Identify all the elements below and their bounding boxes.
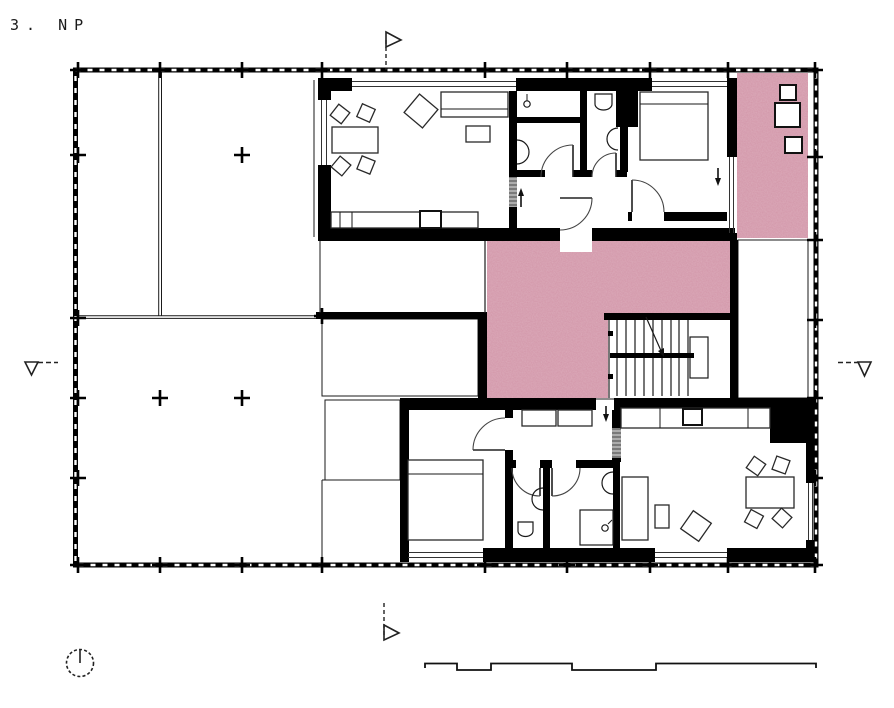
facade-profile-line (425, 664, 816, 671)
bed (408, 460, 483, 540)
chair (746, 456, 765, 475)
washbasin (517, 140, 529, 164)
closet (558, 410, 592, 426)
section-marker-right (838, 362, 871, 376)
north-indicator (67, 650, 94, 677)
bath-door-arc (541, 145, 573, 177)
washbasin (532, 488, 543, 510)
drawing-sheet: 3. NP (0, 0, 894, 708)
terrace-stool (780, 85, 796, 100)
bedroom-door-arc (632, 180, 664, 212)
dining-table (746, 477, 794, 508)
chair (331, 156, 351, 176)
bedroom-door-arc (473, 418, 505, 450)
wc-door-arc (592, 153, 616, 177)
armchair (404, 94, 438, 128)
unit-b-doors (473, 418, 580, 496)
unit-a-furniture (330, 92, 708, 228)
section-flag-icon (384, 625, 399, 640)
chair (357, 104, 375, 122)
chair (330, 104, 350, 124)
unit-b-furniture (408, 408, 794, 541)
section-marker-top (386, 32, 401, 70)
unit-b-fixtures (518, 472, 613, 545)
stair-treads-upper (617, 320, 688, 353)
bath2-door-arc (552, 468, 580, 496)
section-triangle-icon (25, 362, 38, 375)
duct-shaft (616, 91, 638, 127)
side-table (655, 505, 669, 528)
cabinet (466, 126, 490, 142)
bath1-door-arc (512, 468, 540, 496)
staircase (604, 313, 738, 398)
shower-head (602, 525, 608, 531)
toilet (518, 522, 533, 537)
void-left-upper (322, 319, 478, 396)
chair (357, 156, 375, 174)
kitchen-sink (683, 409, 702, 425)
stair-direction-line (646, 317, 662, 353)
cabinet-box (420, 211, 441, 228)
closet (522, 410, 556, 426)
stair-treads-lower (617, 358, 688, 396)
shower-head (524, 101, 530, 107)
section-triangle-icon (858, 362, 871, 376)
low-cabinet-row (331, 212, 478, 228)
floor-plan-canvas (0, 0, 894, 708)
sideboard (441, 92, 508, 117)
section-marker-bottom (384, 603, 399, 640)
shaft-block (770, 398, 816, 443)
wardrobe (622, 477, 648, 540)
dining-table (332, 127, 378, 153)
terrace-stool (785, 137, 802, 153)
terrace-table (775, 103, 800, 127)
void-right (738, 240, 808, 398)
washbasin (602, 472, 613, 494)
roof-terrace-top-right (737, 73, 808, 238)
unit-a-fixtures (517, 94, 618, 164)
void-left-lower (325, 400, 400, 480)
chair (772, 456, 790, 474)
toilet (595, 94, 612, 110)
armchair (681, 511, 712, 542)
interior-columns (152, 147, 330, 406)
bed (640, 92, 708, 160)
unit-a (318, 78, 737, 252)
stair-handrail (610, 353, 694, 358)
chair (745, 510, 764, 529)
unit-b (400, 398, 816, 562)
section-marker-left (25, 362, 58, 375)
washbasin (607, 128, 618, 150)
section-flag-icon (386, 32, 401, 47)
chair (772, 508, 792, 528)
